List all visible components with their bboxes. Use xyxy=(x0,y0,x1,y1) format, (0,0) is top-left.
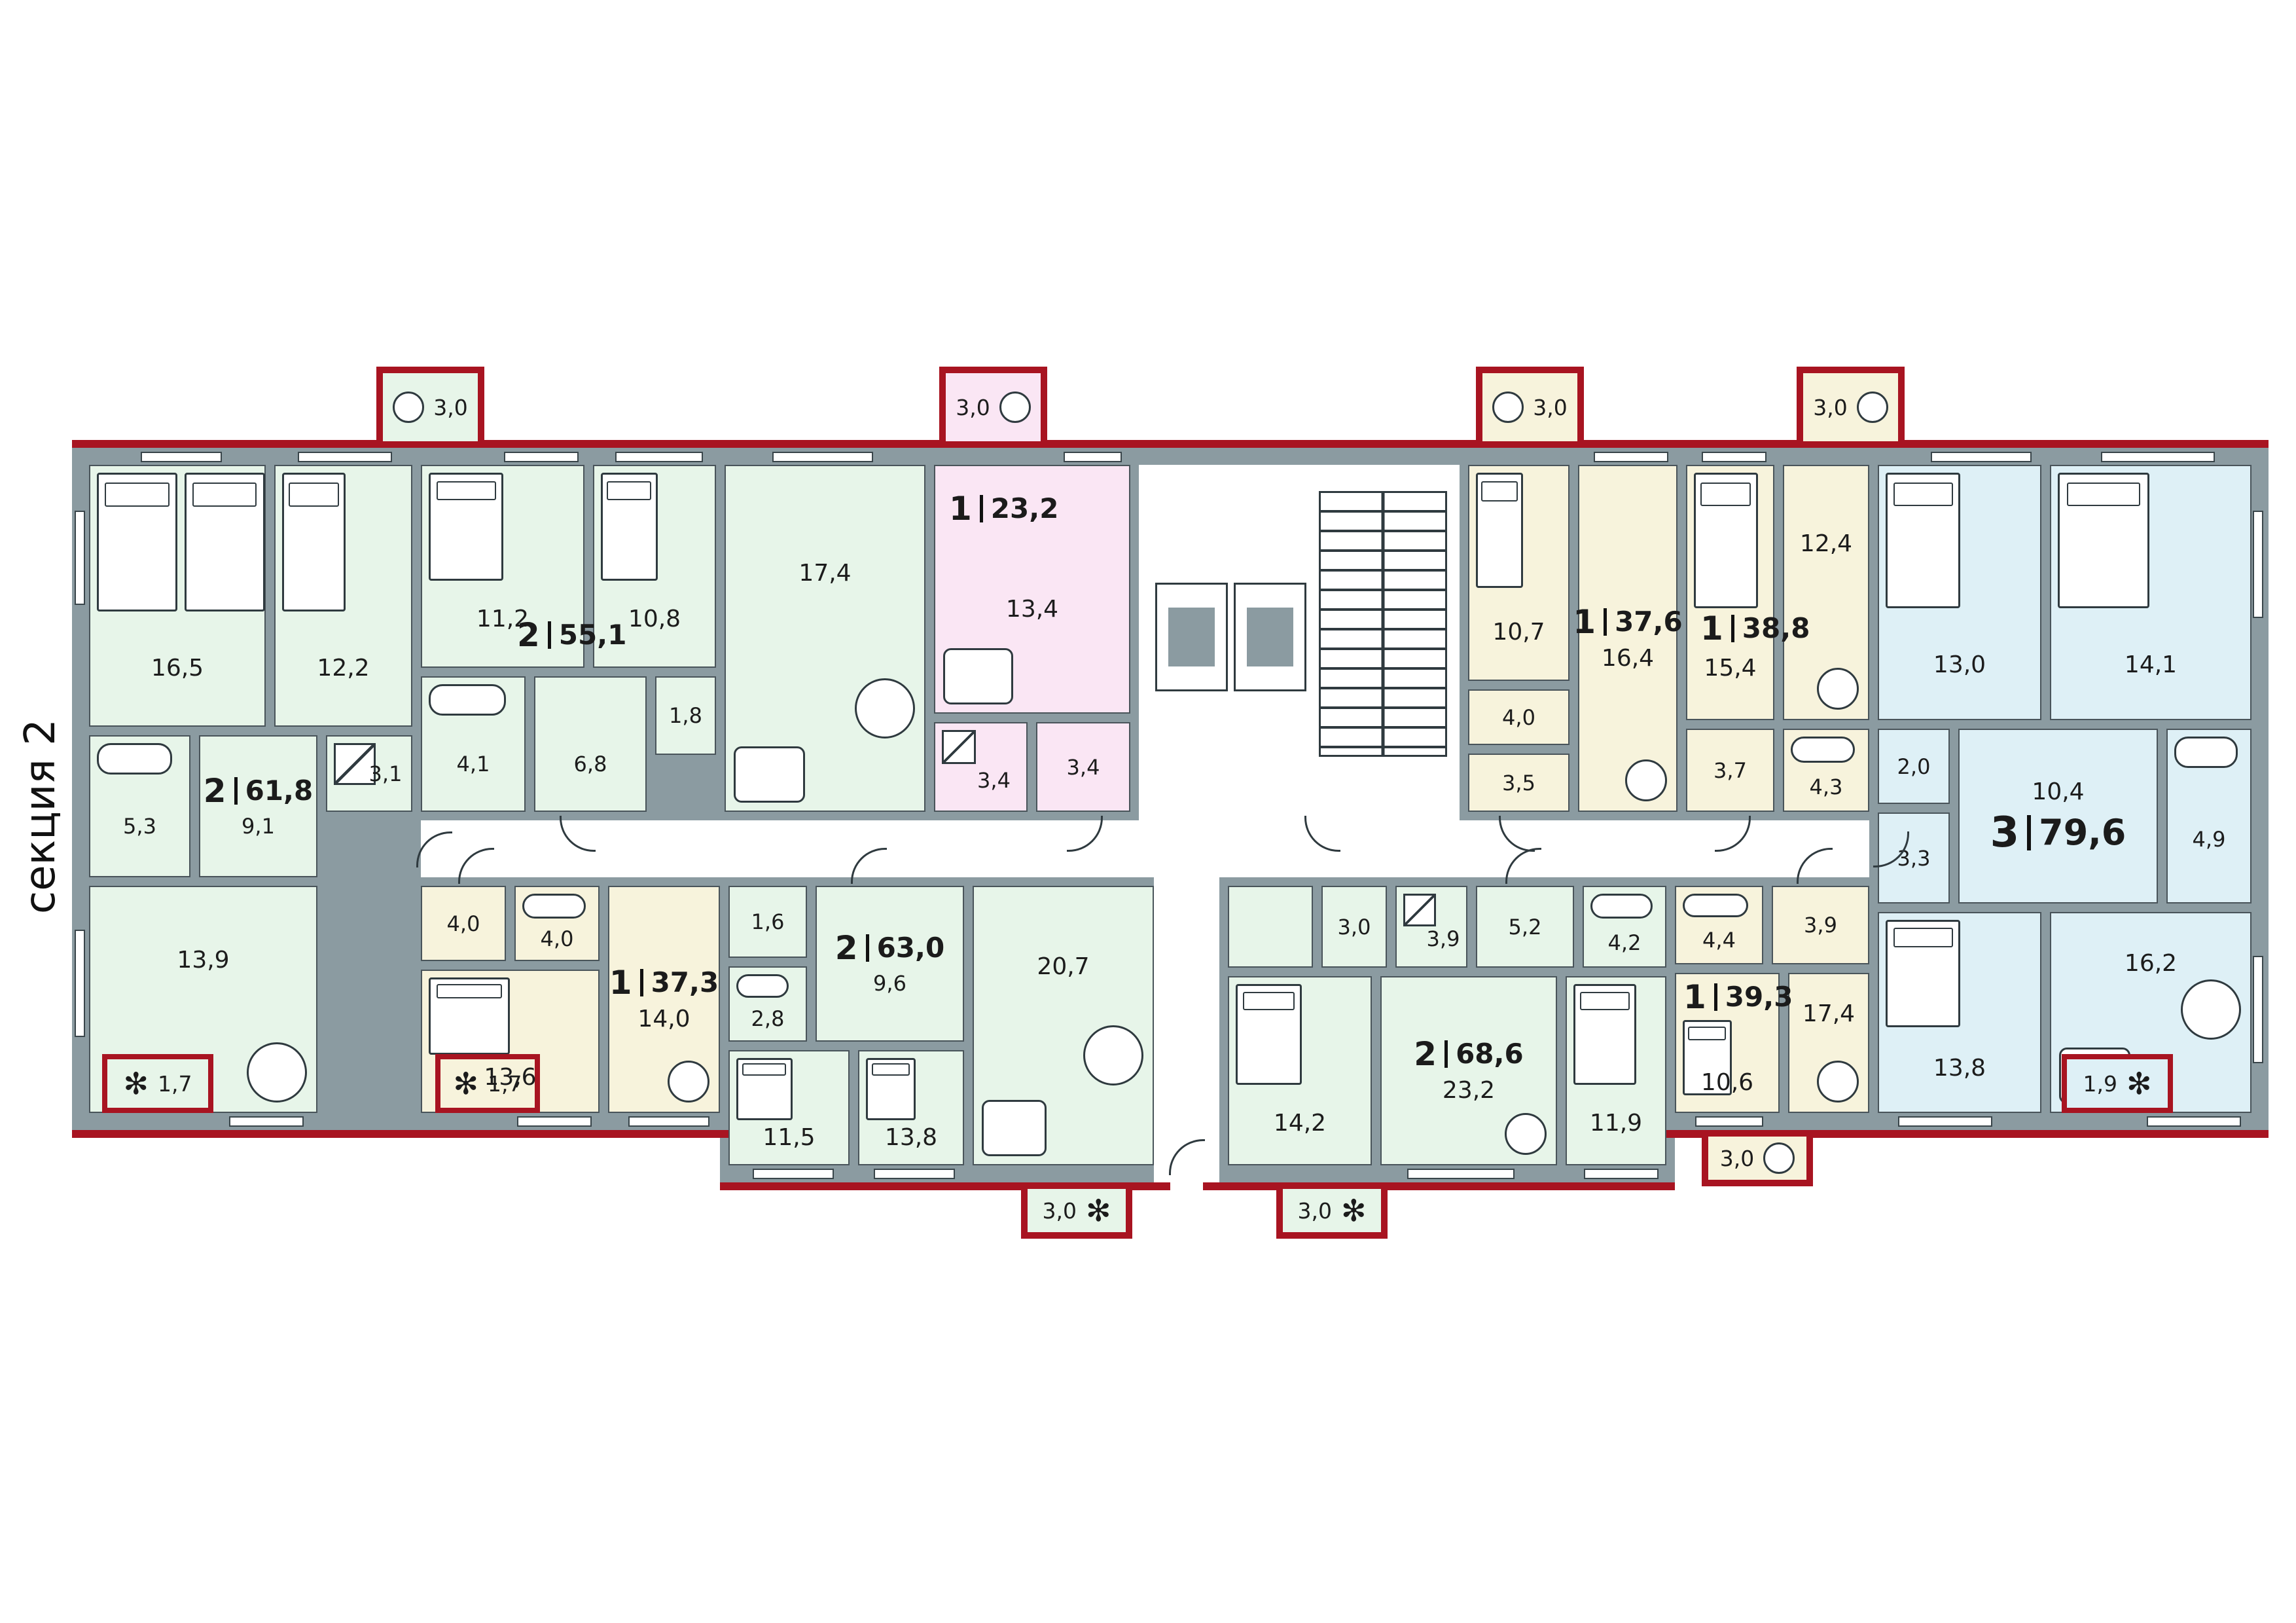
window-icon xyxy=(2253,956,2263,1063)
apartment-label: 123,2 xyxy=(949,492,1058,525)
sofa-icon xyxy=(982,1100,1047,1156)
exterior-wall-red-bottom-left xyxy=(72,1130,737,1138)
apt-37-6-bedroom: 10,7 xyxy=(1468,465,1570,681)
apt-61-8-hall: 261,8 9,1 xyxy=(199,735,317,877)
balcony-table-icon xyxy=(1763,1142,1795,1174)
window-icon xyxy=(874,1169,955,1179)
bed-icon xyxy=(1694,473,1758,608)
balcony-table-icon xyxy=(1492,392,1524,423)
bathtub-icon xyxy=(2174,737,2238,768)
apartment-label: 263,0 xyxy=(835,932,944,964)
apt-37-6-balcony: 3,0 xyxy=(1476,367,1584,448)
apt-63-0-bedroom-1: 11,5 xyxy=(728,1050,850,1165)
apt-63-0-balcony: 3,0 ✻ xyxy=(1021,1182,1132,1239)
apt-55-1-bathroom: 4,1 xyxy=(421,676,526,812)
label-divider xyxy=(2027,815,2031,850)
balcony-chair-icon xyxy=(999,392,1031,423)
plant-icon: ✻ xyxy=(1341,1195,1367,1226)
bathtub-icon xyxy=(736,974,789,998)
apt-38-8-balcony: 3,0 xyxy=(1797,367,1905,448)
bathtub-icon xyxy=(522,894,586,919)
window-icon xyxy=(1584,1169,1659,1179)
floor-plan: секция 2 16,5 12,2 3,1 5,3 261,8 9,1 13,… xyxy=(0,0,2296,1623)
apt-55-1-storage: 1,8 xyxy=(655,676,716,755)
window-icon xyxy=(753,1169,834,1179)
round-table-icon xyxy=(247,1042,307,1103)
entrance-door-gap xyxy=(1170,1182,1203,1190)
apt-79-6-balcony: 1,9 ✻ xyxy=(2062,1054,2173,1113)
bathtub-icon xyxy=(1683,894,1748,917)
common-corridor xyxy=(421,820,1869,877)
bed-icon xyxy=(185,473,265,611)
apt-61-8-bedroom-1: 16,5 xyxy=(89,465,266,727)
window-icon xyxy=(1695,1116,1763,1127)
round-table-icon xyxy=(855,678,915,739)
bed-icon xyxy=(429,473,503,581)
apt-38-8-hall: 3,7 xyxy=(1686,729,1774,812)
label-divider xyxy=(548,621,551,649)
round-table-icon xyxy=(1083,1025,1143,1085)
label-divider xyxy=(1444,1040,1448,1068)
elevator-icon xyxy=(1155,583,1228,691)
apt-23-2-bathroom: 3,4 xyxy=(934,722,1028,812)
plant-icon: ✻ xyxy=(453,1068,478,1099)
apt-55-1-hall: 6,8 xyxy=(534,676,647,812)
apt-37-6-hall: 3,5 xyxy=(1468,754,1570,812)
apt-61-8-balcony: ✻ 1,7 xyxy=(102,1054,213,1113)
bathtub-icon xyxy=(97,743,172,775)
apt-38-8-living-kitchen: 12,4 xyxy=(1783,465,1869,720)
apt-38-8-bathroom: 4,3 xyxy=(1783,729,1869,812)
bed-icon xyxy=(1476,473,1523,588)
apt-63-0-bedroom-2: 13,8 xyxy=(858,1050,964,1165)
apt-55-1-balcony: 3,0 xyxy=(376,367,484,448)
bed-icon xyxy=(97,473,177,611)
apt-61-8-bathroom: 5,3 xyxy=(89,735,190,877)
apt-68-6-bathroom: 4,2 xyxy=(1583,886,1666,968)
sofa-icon xyxy=(734,746,805,803)
window-icon xyxy=(298,452,392,462)
round-table-icon xyxy=(1817,668,1859,710)
bed-icon xyxy=(2058,473,2149,608)
apartment-label: 137,3 xyxy=(609,966,719,999)
round-table-icon xyxy=(1625,759,1667,801)
apt-37-3-hall: 4,0 xyxy=(421,886,506,961)
window-icon xyxy=(1064,452,1122,462)
label-divider xyxy=(1731,615,1734,642)
shower-icon xyxy=(1403,894,1436,926)
bed-icon xyxy=(866,1058,916,1120)
apt-55-1-living-kitchen: 17,4 xyxy=(725,465,925,812)
apartment-label: 379,6 xyxy=(1990,812,2126,854)
bed-icon xyxy=(1573,984,1636,1085)
apt-63-0-hall: 263,0 9,6 xyxy=(816,886,964,1042)
apt-68-6-bedroom-1: 14,2 xyxy=(1228,976,1372,1165)
bed-icon xyxy=(1886,473,1960,608)
shower-icon xyxy=(942,730,976,764)
apt-68-6-balcony: 3,0 ✻ xyxy=(1276,1182,1388,1239)
window-icon xyxy=(772,452,873,462)
apt-39-3-hall: 3,9 xyxy=(1772,886,1869,964)
round-table-icon xyxy=(1505,1113,1547,1155)
window-icon xyxy=(229,1116,304,1127)
window-icon xyxy=(628,1116,709,1127)
window-icon xyxy=(1931,452,2032,462)
plant-icon: ✻ xyxy=(1086,1195,1111,1226)
apt-61-8-bedroom-2: 12,2 xyxy=(274,465,412,727)
apartment-label: 139,3 xyxy=(1683,981,1793,1013)
apt-68-6-kitchen-corner xyxy=(1228,886,1313,968)
window-icon xyxy=(1594,452,1668,462)
apt-79-6-bedroom-3: 13,8 xyxy=(1878,912,2041,1113)
window-icon xyxy=(1702,452,1767,462)
apt-39-3-balcony: 3,0 xyxy=(1702,1130,1813,1186)
apt-39-3-bathroom: 4,4 xyxy=(1675,886,1763,964)
apt-79-6-bathroom: 4,9 xyxy=(2166,729,2251,903)
window-icon xyxy=(517,1116,592,1127)
window-icon xyxy=(141,452,222,462)
apt-68-6-wardrobe: 3,0 xyxy=(1321,886,1387,968)
window-icon xyxy=(1407,1169,1515,1179)
label-divider xyxy=(640,969,643,996)
apartment-label: 268,6 xyxy=(1414,1038,1523,1070)
apartment-label: 138,8 xyxy=(1700,612,1810,645)
window-icon xyxy=(2253,511,2263,618)
label-divider xyxy=(980,495,983,522)
apt-23-2-hall: 3,4 xyxy=(1036,722,1130,812)
round-table-icon xyxy=(1817,1061,1859,1103)
window-icon xyxy=(615,452,703,462)
apt-68-6-living-kitchen: 268,6 23,2 xyxy=(1380,976,1557,1165)
bed-icon xyxy=(282,473,346,611)
bed-icon xyxy=(1236,984,1302,1085)
window-icon xyxy=(2147,1116,2241,1127)
apt-68-6-bedroom-2: 11,9 xyxy=(1566,976,1666,1165)
apt-63-0-bathroom: 2,8 xyxy=(728,966,807,1042)
apt-38-8-bedroom: 15,4 xyxy=(1686,465,1774,720)
apt-37-3-kitchen-living: 137,3 14,0 xyxy=(608,886,720,1113)
plant-icon: ✻ xyxy=(123,1068,149,1099)
apartment-label: 255,1 xyxy=(517,619,626,651)
bed-icon xyxy=(1886,920,1960,1027)
apt-63-0-living-kitchen: 20,7 xyxy=(973,886,1154,1165)
window-icon xyxy=(504,452,579,462)
apt-63-0-wc: 1,6 xyxy=(728,886,807,958)
balcony-table-icon xyxy=(1857,392,1888,423)
label-divider xyxy=(1604,608,1607,636)
plant-icon: ✻ xyxy=(2126,1068,2152,1099)
apt-79-6-hall: 10,4 379,6 xyxy=(1958,729,2158,903)
window-icon xyxy=(75,511,85,605)
label-divider xyxy=(1714,983,1717,1011)
label-divider xyxy=(866,934,869,962)
apt-37-6-bathroom: 4,0 xyxy=(1468,689,1570,745)
apt-79-6-wardrobe: 2,0 xyxy=(1878,729,1950,804)
apartment-label: 261,8 xyxy=(204,775,313,807)
apt-61-8-shower: 3,1 xyxy=(326,735,412,812)
round-table-icon xyxy=(668,1061,709,1103)
label-divider xyxy=(234,777,238,805)
bathtub-icon xyxy=(1791,737,1855,763)
apt-37-3-bathroom: 4,0 xyxy=(514,886,600,961)
window-icon xyxy=(1898,1116,1992,1127)
stairs-icon xyxy=(1319,491,1447,757)
apt-23-2-balcony: 3,0 xyxy=(939,367,1047,448)
apt-68-6-hall: 5,2 xyxy=(1476,886,1574,968)
sofa-icon xyxy=(943,648,1013,704)
section-title: секция 2 xyxy=(16,718,65,915)
entrance-passage xyxy=(1154,820,1219,1182)
balcony-table-icon xyxy=(393,392,424,423)
elevator-icon xyxy=(1234,583,1306,691)
apt-39-3-living-kitchen: 17,4 xyxy=(1788,973,1869,1113)
round-table-icon xyxy=(2181,979,2241,1040)
window-icon xyxy=(75,930,85,1037)
window-icon xyxy=(2101,452,2215,462)
apt-79-6-bedroom-2: 14,1 xyxy=(2050,465,2251,720)
bathtub-icon xyxy=(1590,894,1653,919)
bed-icon xyxy=(736,1058,793,1120)
bed-icon xyxy=(601,473,658,581)
bed-icon xyxy=(429,977,510,1055)
apt-37-6-living-kitchen: 137,6 16,4 xyxy=(1578,465,1677,812)
bathtub-icon xyxy=(429,684,506,716)
apartment-label: 137,6 xyxy=(1573,606,1682,638)
apt-79-6-bedroom-1: 13,0 xyxy=(1878,465,2041,720)
apt-68-6-shower: 3,9 xyxy=(1395,886,1467,968)
